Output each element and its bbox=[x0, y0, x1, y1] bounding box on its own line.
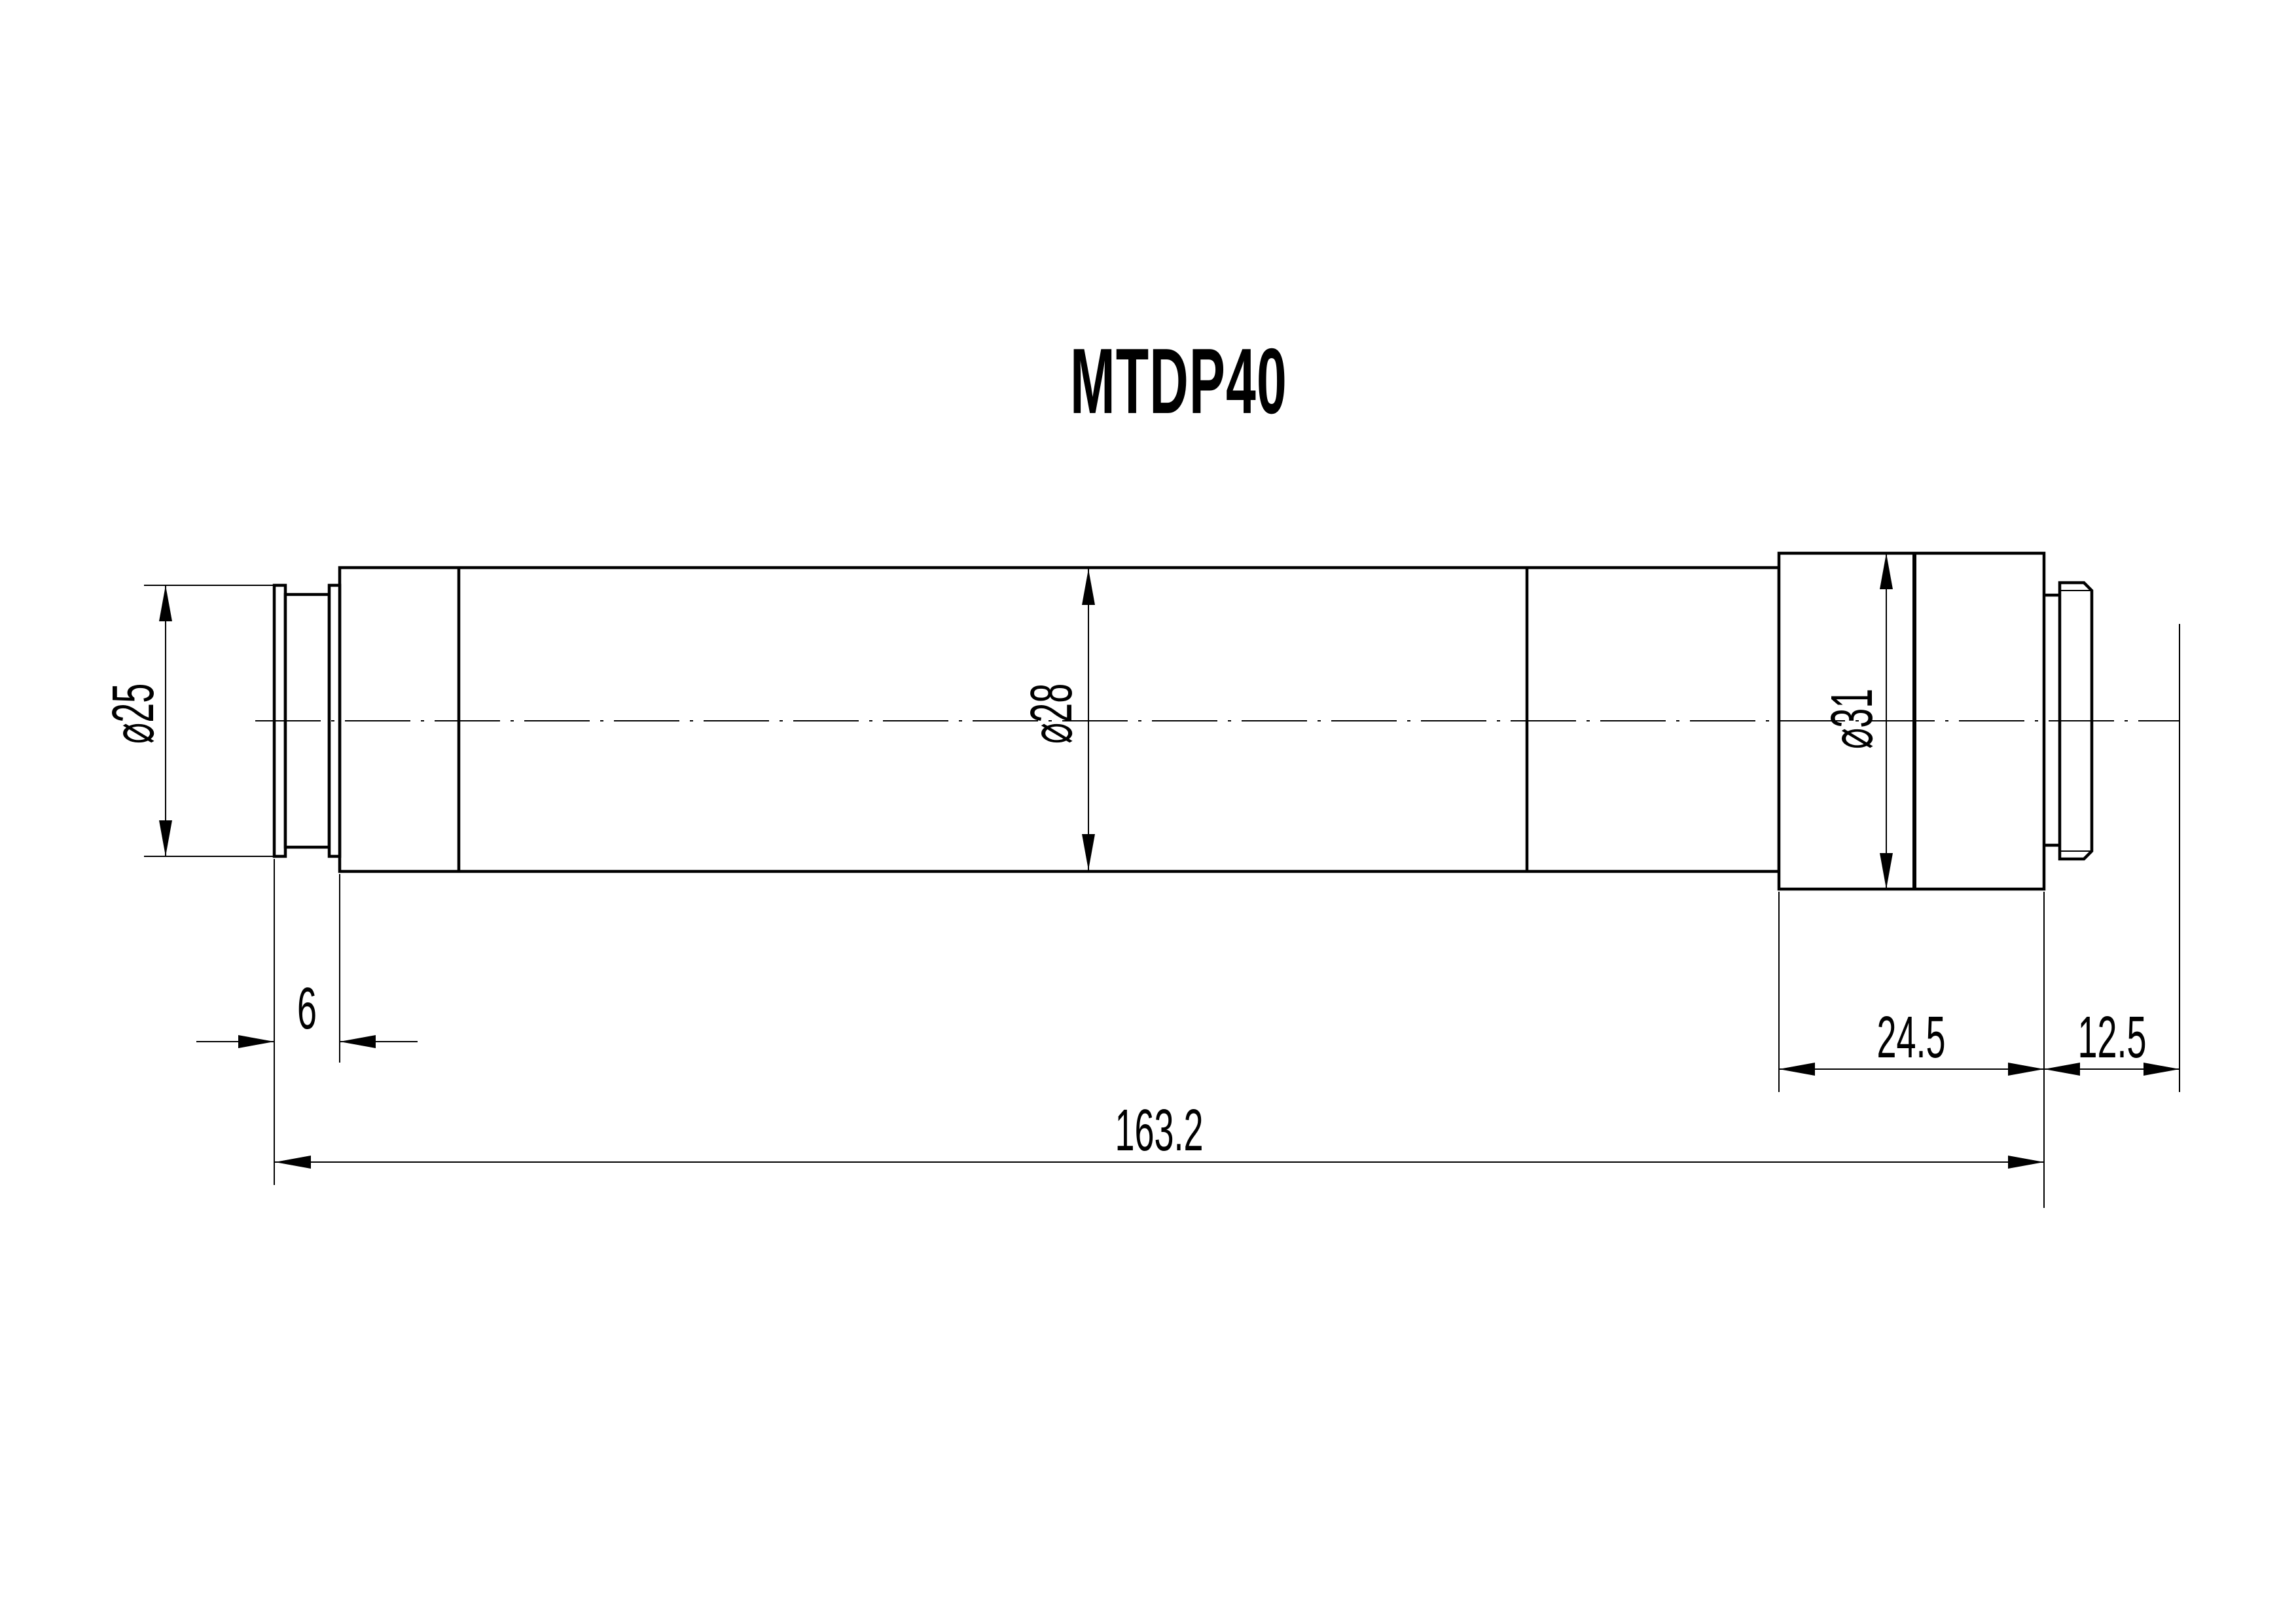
dimension-label-dia25: ⌀25 bbox=[100, 684, 166, 744]
dimension-label-dia31: ⌀31 bbox=[1819, 689, 1885, 750]
drawing-sheet: ⌀25 ⌀28 ⌀31 6 bbox=[0, 0, 2296, 1623]
arrowhead-left bbox=[340, 1035, 376, 1048]
arrowhead-up bbox=[159, 585, 172, 621]
arrowhead-down bbox=[159, 820, 172, 856]
arrowhead-left bbox=[275, 1156, 311, 1169]
dimension-label-len1632: 163.2 bbox=[1115, 1097, 1203, 1163]
dimension-dia25: ⌀25 bbox=[100, 585, 274, 856]
arrowhead-right bbox=[2144, 1063, 2179, 1076]
arrowhead-right bbox=[2008, 1063, 2044, 1076]
arrowhead-right bbox=[238, 1035, 274, 1048]
arrowhead-right bbox=[2008, 1156, 2044, 1169]
drawing-title: MTDP40 bbox=[1070, 329, 1287, 433]
technical-drawing-canvas: ⌀25 ⌀28 ⌀31 6 bbox=[0, 0, 2296, 1623]
dimension-label-dia28: ⌀28 bbox=[1018, 684, 1085, 744]
dimension-label-len6: 6 bbox=[297, 976, 317, 1042]
dimension-label-len125: 12.5 bbox=[2077, 1004, 2146, 1070]
dimension-len6: 6 bbox=[196, 859, 418, 1185]
dimension-len245: 24.5 bbox=[1779, 892, 2044, 1092]
arrowhead-left bbox=[2044, 1063, 2080, 1076]
arrowhead-left bbox=[1779, 1063, 1815, 1076]
dimension-label-len245: 24.5 bbox=[1876, 1004, 1945, 1070]
